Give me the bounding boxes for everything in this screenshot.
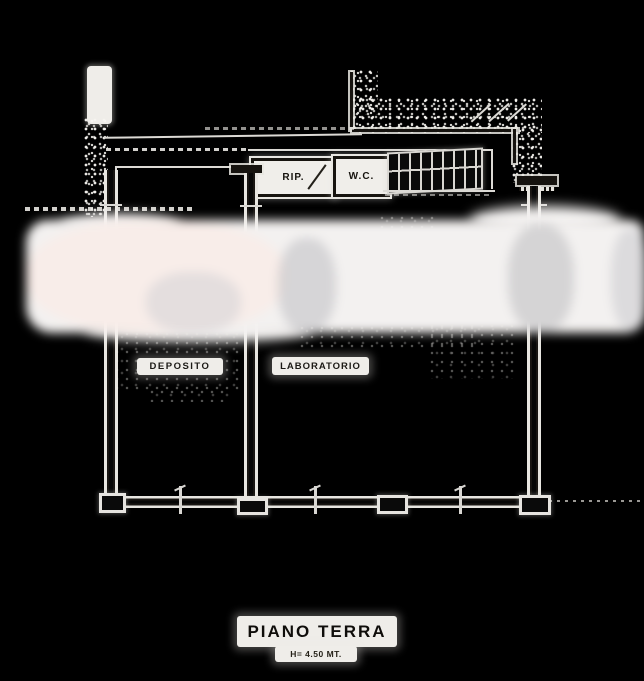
corner-block-right: [519, 495, 551, 515]
plan-height-note: H= 4.50 MT.: [275, 646, 357, 662]
inner-top-corner-h: [116, 166, 250, 168]
staircase-symbol: [387, 147, 483, 194]
opening-tick: [459, 486, 462, 514]
redaction-shadow: [278, 238, 336, 333]
redaction-shadow: [508, 224, 574, 333]
top-boundary-line: [104, 133, 362, 139]
speckle-patch: [150, 390, 230, 402]
top-boundary-speckle: [205, 127, 355, 130]
staircase-underline-speckle: [385, 194, 490, 196]
wall-cross-tick: [240, 205, 262, 207]
room-rip: RIP.: [251, 158, 336, 197]
speckle-patch: [430, 324, 515, 379]
opening-tick: [314, 486, 317, 514]
left-wall-hatch-top: [87, 66, 112, 124]
footing-block-center: [237, 498, 268, 515]
opening-tick: [179, 486, 182, 514]
room-wc: W.C.: [333, 156, 390, 197]
service-row-right-end: [491, 151, 493, 189]
inner-top-line: [106, 148, 250, 151]
room-rip-label: RIP.: [282, 172, 304, 183]
plan-title-text: PIANO TERRA: [247, 622, 386, 642]
wall-cross-tick: [100, 204, 122, 206]
top-wall-edge-corner: [513, 129, 516, 163]
room-wc-label: W.C.: [349, 171, 375, 182]
corner-block-left: [99, 493, 126, 513]
exterior-wall-bottom: [100, 496, 548, 508]
redaction-shadow: [146, 272, 241, 333]
top-wall-hatch-vertical-right: [512, 128, 542, 183]
room-deposito-label: DEPOSITO: [150, 361, 211, 372]
plan-height-note-text: H= 4.50 MT.: [290, 649, 342, 659]
redaction-shadow: [611, 228, 644, 331]
pillar-block-bottom: [377, 495, 408, 514]
top-wall-edge-vertical: [350, 72, 353, 130]
plan-title: PIANO TERRA: [237, 616, 397, 647]
bottom-wall-dotted-extension: [549, 500, 641, 502]
pillar-left-cap: [231, 165, 262, 173]
top-wall-edge-horizontal: [352, 129, 518, 132]
room-deposito: DEPOSITO: [137, 358, 223, 375]
room-laboratorio-label: LABORATORIO: [280, 361, 361, 372]
staircase-underline: [383, 190, 495, 192]
pillar-right-cap: [517, 176, 557, 185]
redacted-text-band: [26, 220, 644, 333]
room-laboratorio: LABORATORIO: [272, 357, 369, 375]
floor-plan-scan: RIP. W.C. DEPOSITO LABORATORIO: [0, 0, 644, 681]
faded-line-remnant: [25, 207, 195, 211]
